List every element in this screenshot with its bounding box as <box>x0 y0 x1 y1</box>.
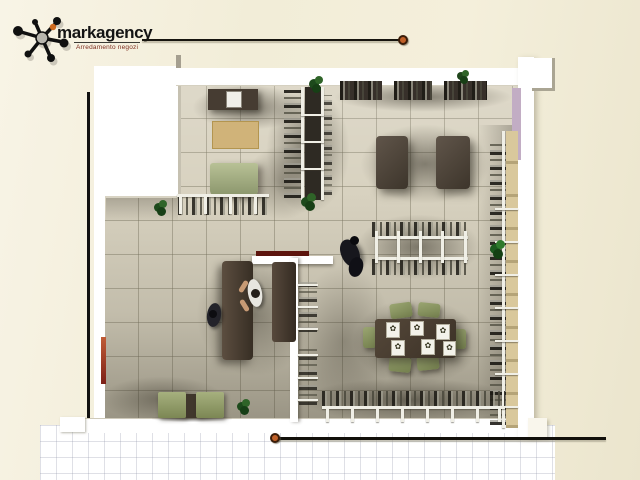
brand-tagline: Arredamento negozi <box>76 44 138 51</box>
brand-name: markagency <box>57 23 152 43</box>
potted-plant <box>153 200 169 217</box>
potted-plant <box>300 193 318 212</box>
place-setting: ✿ <box>386 322 400 338</box>
left-wall-red-poster <box>101 337 106 384</box>
exterior-wall-line <box>87 92 90 422</box>
wall-shelf-2 <box>394 81 432 100</box>
top-rule-dot <box>398 35 408 45</box>
chair-top-2 <box>417 302 440 318</box>
customer-figure <box>339 235 369 280</box>
potted-plant <box>456 70 471 85</box>
top-rule <box>142 39 402 41</box>
vertical-rack-clothes-right <box>323 95 332 195</box>
place-setting: ✿ <box>436 324 450 340</box>
bottom-rack-clothes <box>322 391 505 407</box>
wall-rail-clothes-upper <box>299 278 317 332</box>
potted-plant <box>489 240 506 259</box>
lounge-chair-2 <box>196 392 224 418</box>
brand-underline <box>74 42 140 43</box>
bottom-rule-dot <box>270 433 280 443</box>
vertical-rack-panel <box>305 87 321 200</box>
entrance-vestibule <box>94 66 181 198</box>
green-counter <box>210 163 258 197</box>
display-table-2 <box>436 136 470 189</box>
bottom-left-notch <box>60 417 85 432</box>
place-setting: ✿ <box>443 341 456 356</box>
bottom-right-step <box>528 418 547 438</box>
place-setting: ✿ <box>391 340 405 356</box>
display-cabinet <box>208 89 258 110</box>
chair-bottom-1 <box>388 356 411 373</box>
potted-plant <box>236 399 252 416</box>
chair-top-1 <box>389 302 413 320</box>
cash-desk-side <box>272 262 296 342</box>
bottom-tile-grid <box>40 425 555 480</box>
right-rack-panels <box>506 131 518 428</box>
cabinet-insert <box>226 91 242 108</box>
display-table-1 <box>376 136 408 189</box>
rug <box>212 121 259 149</box>
top-right-door <box>532 58 555 91</box>
customer-figure <box>204 300 226 332</box>
left-wall <box>94 190 105 426</box>
place-setting: ✿ <box>421 339 435 355</box>
staff-figure <box>240 276 270 316</box>
wall-shelf-1 <box>340 81 382 100</box>
right-rack-rail <box>502 131 505 428</box>
place-setting: ✿ <box>410 321 424 336</box>
potted-plant <box>308 76 325 94</box>
orange-splat-blob <box>50 24 56 30</box>
page: ✿ ✿ ✿ ✿ ✿ ✿ <box>0 0 640 480</box>
lounge-chair-1 <box>158 392 186 418</box>
vertical-rack-clothes-left <box>284 90 301 198</box>
bottom-rule <box>278 437 606 440</box>
